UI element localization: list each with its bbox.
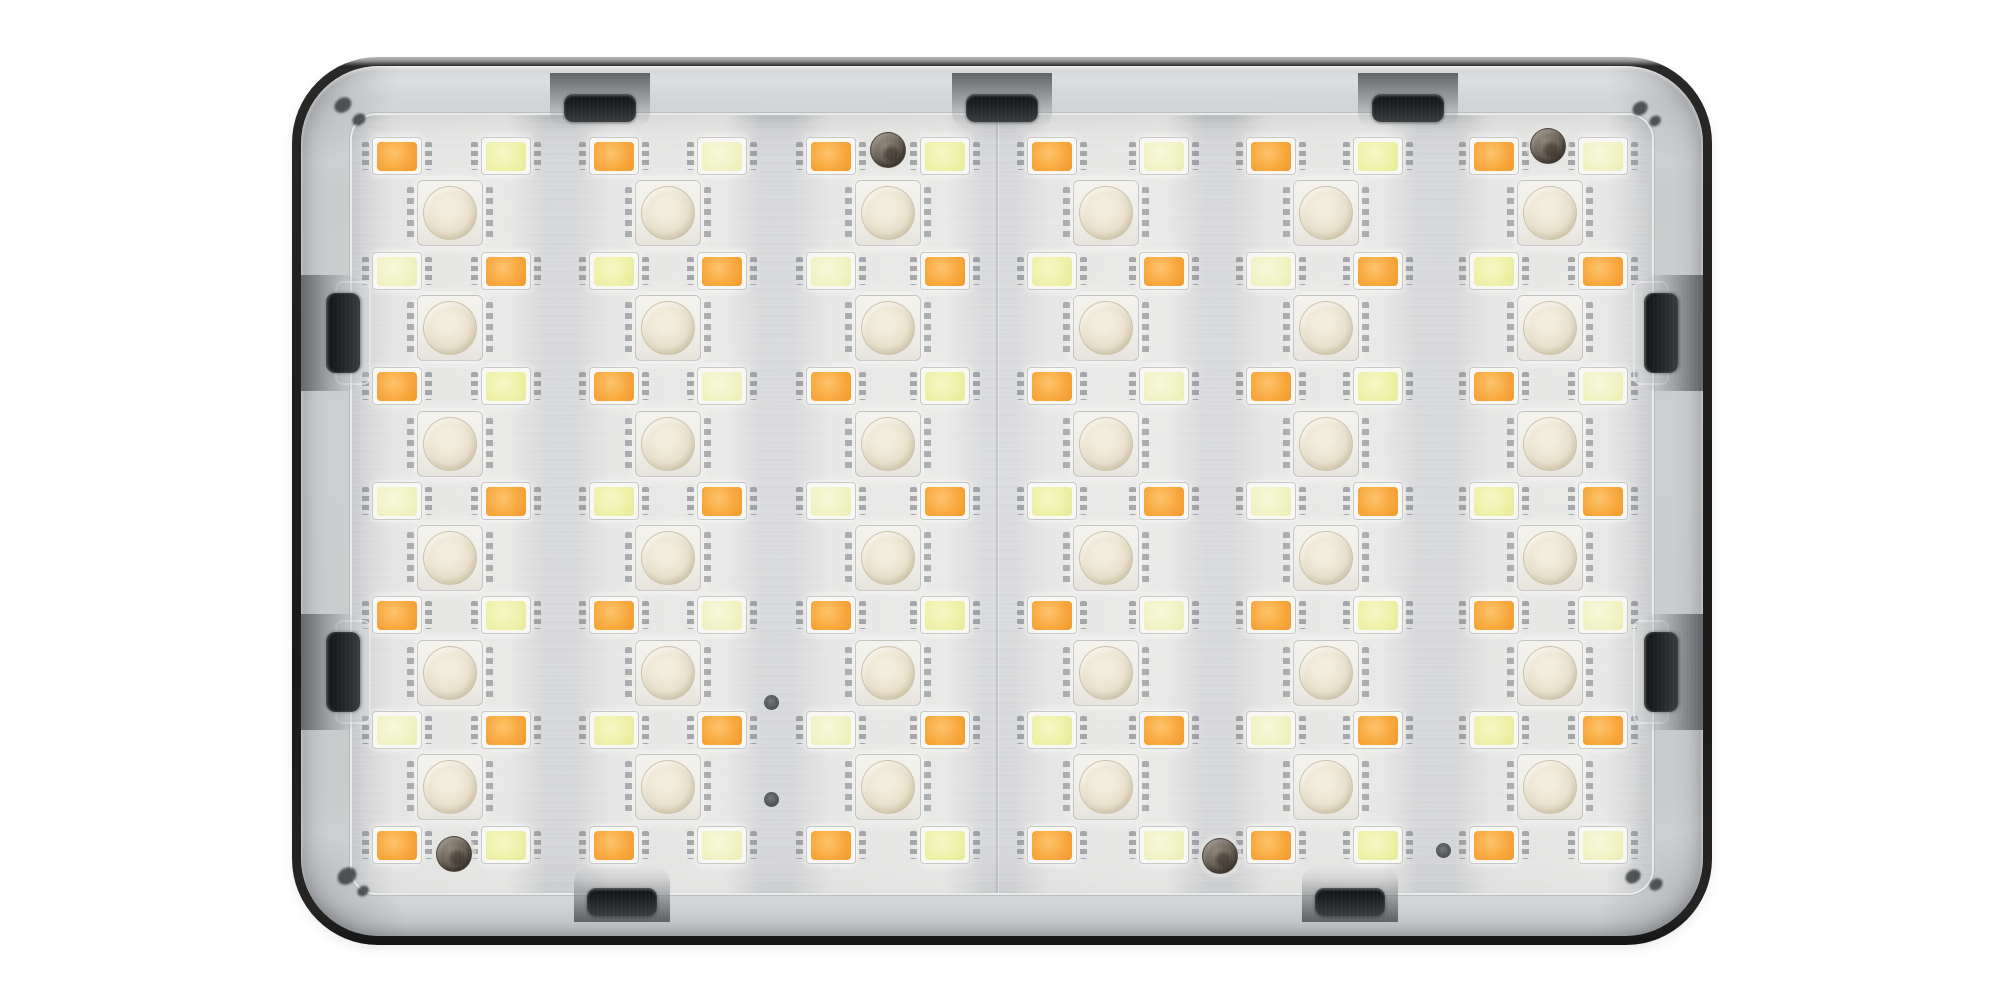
led-white-dome — [417, 411, 483, 477]
led-emitter — [811, 257, 851, 286]
led-white-dome — [417, 525, 483, 591]
led-emitter — [1474, 601, 1514, 630]
led-white-dome — [1293, 525, 1359, 591]
led-emitter — [1474, 487, 1514, 516]
diffuser-texture — [352, 115, 1652, 893]
led-emitter — [811, 601, 851, 630]
led-amber-chip — [1469, 826, 1519, 864]
led-emitter — [594, 716, 634, 745]
led-emitter — [925, 372, 965, 401]
led-emitter — [1474, 716, 1514, 745]
tab-slot — [564, 94, 636, 122]
dome-lens — [861, 646, 915, 700]
led-emitter — [1251, 372, 1291, 401]
led-emitter — [1583, 716, 1623, 745]
led-amber-chip — [1027, 367, 1077, 405]
corner-clip-mark — [1647, 113, 1662, 128]
led-emitter — [486, 257, 526, 286]
corner-clip-mark — [332, 94, 355, 116]
dome-lens — [861, 760, 915, 814]
led-emitter — [1144, 831, 1184, 860]
led-emitter — [1251, 487, 1291, 516]
led-lime-chip — [1353, 367, 1403, 405]
led-emitter — [1583, 257, 1623, 286]
dome-lens — [641, 186, 695, 240]
led-white-dome — [1517, 640, 1583, 706]
led-white-dome — [417, 295, 483, 361]
dome-lens — [1079, 760, 1133, 814]
led-emitter — [1251, 601, 1291, 630]
led-emitter — [486, 487, 526, 516]
led-amber-chip — [481, 482, 531, 520]
led-amber-chip — [920, 711, 970, 749]
dome-lens — [1299, 646, 1353, 700]
led-lime-chip — [697, 367, 747, 405]
led-emitter — [594, 831, 634, 860]
led-emitter — [1251, 716, 1291, 745]
screw — [436, 836, 472, 872]
led-lime-chip — [920, 137, 970, 175]
led-lime-chip — [1469, 711, 1519, 749]
led-emitter — [925, 257, 965, 286]
led-amber-chip — [589, 137, 639, 175]
dome-lens — [1299, 186, 1353, 240]
led-amber-chip — [1353, 482, 1403, 520]
led-white-dome — [1293, 295, 1359, 361]
tab-slot — [1644, 632, 1678, 712]
led-lime-chip — [1578, 826, 1628, 864]
led-emitter — [486, 601, 526, 630]
led-lime-chip — [1027, 482, 1077, 520]
led-amber-chip — [589, 596, 639, 634]
dome-lens — [1079, 186, 1133, 240]
led-emitter — [1144, 257, 1184, 286]
led-lime-chip — [1578, 367, 1628, 405]
led-emitter — [1251, 257, 1291, 286]
led-lime-chip — [1139, 596, 1189, 634]
dome-lens — [1079, 417, 1133, 471]
dome-lens — [641, 531, 695, 585]
pcb-via-dot — [1436, 843, 1451, 858]
led-amber-chip — [697, 711, 747, 749]
led-emitter — [594, 487, 634, 516]
led-white-dome — [855, 411, 921, 477]
led-lime-chip — [372, 711, 422, 749]
led-lime-chip — [589, 252, 639, 290]
led-amber-chip — [372, 137, 422, 175]
dome-lens — [423, 186, 477, 240]
led-white-dome — [635, 640, 701, 706]
led-emitter — [1583, 487, 1623, 516]
led-white-dome — [635, 411, 701, 477]
dome-lens — [423, 301, 477, 355]
led-emitter — [377, 257, 417, 286]
dome-lens — [423, 417, 477, 471]
led-white-dome — [1293, 754, 1359, 820]
led-lime-chip — [806, 711, 856, 749]
dome-lens — [1079, 646, 1133, 700]
led-lime-chip — [1469, 482, 1519, 520]
led-emitter — [377, 831, 417, 860]
led-amber-chip — [920, 482, 970, 520]
led-emitter — [1474, 831, 1514, 860]
led-emitter — [1032, 257, 1072, 286]
led-white-dome — [1293, 640, 1359, 706]
dome-lens — [641, 646, 695, 700]
led-emitter — [1032, 831, 1072, 860]
led-amber-chip — [1139, 252, 1189, 290]
led-white-dome — [855, 180, 921, 246]
led-lime-chip — [920, 367, 970, 405]
led-lime-chip — [481, 367, 531, 405]
led-lime-chip — [697, 596, 747, 634]
dome-lens — [1523, 186, 1577, 240]
led-emitter — [1144, 716, 1184, 745]
led-lime-chip — [920, 826, 970, 864]
led-white-dome — [855, 640, 921, 706]
dome-lens — [1079, 531, 1133, 585]
led-lime-chip — [589, 711, 639, 749]
dome-lens — [1299, 417, 1353, 471]
dome-lens — [861, 301, 915, 355]
led-amber-chip — [806, 137, 856, 175]
pcb-via-dot — [764, 695, 779, 710]
led-emitter — [594, 142, 634, 171]
led-emitter — [1032, 372, 1072, 401]
tab-slot — [326, 293, 360, 373]
dome-lens — [423, 531, 477, 585]
led-emitter — [377, 372, 417, 401]
led-emitter — [486, 142, 526, 171]
led-emitter — [702, 257, 742, 286]
led-amber-chip — [1139, 711, 1189, 749]
led-emitter — [594, 257, 634, 286]
led-white-dome — [635, 754, 701, 820]
led-amber-chip — [697, 252, 747, 290]
led-white-dome — [417, 180, 483, 246]
pcb-via-dot — [764, 792, 779, 807]
led-emitter — [1358, 716, 1398, 745]
led-amber-chip — [1578, 482, 1628, 520]
led-emitter — [1251, 142, 1291, 171]
led-emitter — [1144, 487, 1184, 516]
led-emitter — [1032, 716, 1072, 745]
led-emitter — [594, 601, 634, 630]
tab-slot — [326, 632, 360, 712]
led-emitter — [1358, 142, 1398, 171]
tab-slot — [1644, 293, 1678, 373]
led-emitter — [1251, 831, 1291, 860]
led-amber-chip — [1027, 137, 1077, 175]
led-amber-chip — [1246, 367, 1296, 405]
led-lime-chip — [920, 596, 970, 634]
led-amber-chip — [1578, 252, 1628, 290]
led-emitter — [1358, 601, 1398, 630]
dome-lens — [423, 646, 477, 700]
tab-slot — [1315, 888, 1385, 916]
led-lime-chip — [806, 252, 856, 290]
dome-lens — [1523, 301, 1577, 355]
led-emitter — [702, 142, 742, 171]
led-lime-chip — [1578, 137, 1628, 175]
led-panel-light — [292, 57, 1712, 945]
led-amber-chip — [481, 711, 531, 749]
led-white-dome — [635, 525, 701, 591]
led-lime-chip — [697, 137, 747, 175]
led-emitter — [1358, 372, 1398, 401]
led-emitter — [811, 831, 851, 860]
led-white-dome — [635, 180, 701, 246]
led-lime-chip — [697, 826, 747, 864]
photo-canvas — [0, 0, 2000, 1000]
tab-slot — [1372, 94, 1444, 122]
led-amber-chip — [1469, 367, 1519, 405]
led-lime-chip — [1027, 711, 1077, 749]
led-lime-chip — [1246, 711, 1296, 749]
led-emitter — [925, 487, 965, 516]
dome-lens — [641, 301, 695, 355]
led-white-dome — [1517, 295, 1583, 361]
led-white-dome — [855, 754, 921, 820]
led-amber-chip — [920, 252, 970, 290]
led-emitter — [486, 831, 526, 860]
led-emitter — [702, 372, 742, 401]
led-emitter — [702, 716, 742, 745]
led-emitter — [1583, 601, 1623, 630]
panel-bezel — [301, 66, 1703, 936]
led-lime-chip — [372, 252, 422, 290]
led-white-dome — [855, 525, 921, 591]
led-lime-chip — [589, 482, 639, 520]
dome-lens — [1523, 760, 1577, 814]
led-white-dome — [1073, 180, 1139, 246]
led-emitter — [1474, 372, 1514, 401]
screw — [870, 132, 906, 168]
led-emitter — [1358, 257, 1398, 286]
led-white-dome — [1073, 295, 1139, 361]
led-white-dome — [1073, 640, 1139, 706]
led-lime-chip — [1139, 137, 1189, 175]
led-emitter — [377, 601, 417, 630]
led-emitter — [377, 487, 417, 516]
led-lime-chip — [1139, 826, 1189, 864]
led-emitter — [594, 372, 634, 401]
panel-seam — [996, 115, 998, 893]
led-amber-chip — [372, 367, 422, 405]
led-emitter — [1474, 142, 1514, 171]
led-white-dome — [1293, 180, 1359, 246]
screw — [1530, 128, 1566, 164]
dome-lens — [641, 417, 695, 471]
diffuser-panel — [352, 115, 1652, 893]
led-white-dome — [417, 754, 483, 820]
led-amber-chip — [1139, 482, 1189, 520]
led-amber-chip — [1353, 252, 1403, 290]
led-emitter — [702, 487, 742, 516]
led-amber-chip — [372, 826, 422, 864]
led-white-dome — [635, 295, 701, 361]
led-emitter — [1474, 257, 1514, 286]
led-white-dome — [1073, 411, 1139, 477]
led-white-dome — [1073, 754, 1139, 820]
led-amber-chip — [1027, 826, 1077, 864]
led-emitter — [377, 716, 417, 745]
led-emitter — [811, 487, 851, 516]
dome-lens — [1299, 301, 1353, 355]
dome-lens — [1523, 417, 1577, 471]
dome-lens — [861, 186, 915, 240]
led-white-dome — [1073, 525, 1139, 591]
led-lime-chip — [481, 826, 531, 864]
led-emitter — [486, 372, 526, 401]
dome-lens — [641, 760, 695, 814]
led-lime-chip — [1353, 826, 1403, 864]
dome-lens — [861, 417, 915, 471]
led-amber-chip — [1469, 137, 1519, 175]
led-amber-chip — [1246, 596, 1296, 634]
led-emitter — [702, 831, 742, 860]
led-amber-chip — [697, 482, 747, 520]
dome-lens — [1299, 760, 1353, 814]
tab-slot — [587, 888, 657, 916]
led-emitter — [1358, 487, 1398, 516]
dome-lens — [1079, 301, 1133, 355]
led-amber-chip — [806, 596, 856, 634]
led-amber-chip — [481, 252, 531, 290]
led-emitter — [1583, 142, 1623, 171]
dome-lens — [1299, 531, 1353, 585]
led-emitter — [1144, 372, 1184, 401]
led-amber-chip — [1578, 711, 1628, 749]
led-white-dome — [417, 640, 483, 706]
led-emitter — [1583, 372, 1623, 401]
led-lime-chip — [806, 482, 856, 520]
led-lime-chip — [1027, 252, 1077, 290]
led-amber-chip — [1469, 596, 1519, 634]
led-emitter — [811, 716, 851, 745]
dome-lens — [1523, 531, 1577, 585]
led-lime-chip — [481, 596, 531, 634]
led-amber-chip — [1027, 596, 1077, 634]
led-emitter — [1583, 831, 1623, 860]
led-lime-chip — [1246, 482, 1296, 520]
led-lime-chip — [1469, 252, 1519, 290]
screw — [1202, 838, 1238, 874]
led-emitter — [1144, 142, 1184, 171]
led-emitter — [811, 142, 851, 171]
led-emitter — [1358, 831, 1398, 860]
dome-lens — [1523, 646, 1577, 700]
dome-lens — [861, 531, 915, 585]
led-emitter — [925, 601, 965, 630]
led-emitter — [1032, 487, 1072, 516]
led-emitter — [925, 716, 965, 745]
led-lime-chip — [1353, 596, 1403, 634]
tab-slot — [966, 94, 1038, 122]
led-emitter — [1032, 142, 1072, 171]
led-amber-chip — [806, 367, 856, 405]
led-emitter — [925, 142, 965, 171]
led-emitter — [811, 372, 851, 401]
led-white-dome — [855, 295, 921, 361]
led-amber-chip — [589, 826, 639, 864]
led-white-dome — [1517, 525, 1583, 591]
led-emitter — [702, 601, 742, 630]
led-lime-chip — [1353, 137, 1403, 175]
led-amber-chip — [1246, 826, 1296, 864]
led-emitter — [1032, 601, 1072, 630]
led-emitter — [486, 716, 526, 745]
led-white-dome — [1517, 180, 1583, 246]
led-lime-chip — [1139, 367, 1189, 405]
led-amber-chip — [372, 596, 422, 634]
dome-lens — [423, 760, 477, 814]
led-lime-chip — [1578, 596, 1628, 634]
led-emitter — [925, 831, 965, 860]
led-white-dome — [1293, 411, 1359, 477]
led-white-dome — [1517, 754, 1583, 820]
led-amber-chip — [1246, 137, 1296, 175]
led-amber-chip — [806, 826, 856, 864]
led-lime-chip — [1246, 252, 1296, 290]
led-amber-chip — [1353, 711, 1403, 749]
led-lime-chip — [372, 482, 422, 520]
led-lime-chip — [481, 137, 531, 175]
led-amber-chip — [589, 367, 639, 405]
led-emitter — [1144, 601, 1184, 630]
led-emitter — [377, 142, 417, 171]
led-white-dome — [1517, 411, 1583, 477]
